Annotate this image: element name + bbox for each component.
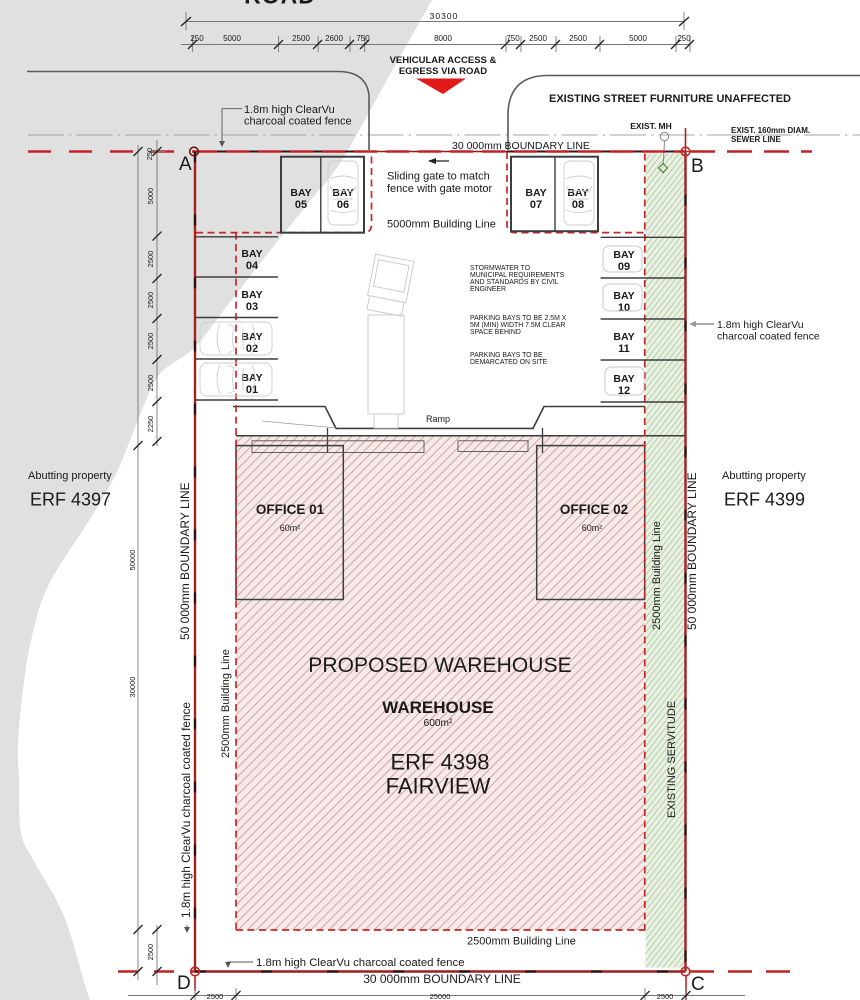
svg-text:8000: 8000 <box>434 34 452 43</box>
svg-text:BAY: BAY <box>613 249 634 261</box>
svg-text:2500: 2500 <box>146 251 155 268</box>
svg-text:OFFICE 02: OFFICE 02 <box>560 502 628 517</box>
svg-text:D: D <box>177 973 191 994</box>
svg-text:EXIST. 160mm DIAM.: EXIST. 160mm DIAM. <box>731 126 810 135</box>
svg-text:SEWER LINE: SEWER LINE <box>731 135 781 144</box>
svg-text:ERF 4399: ERF 4399 <box>724 490 805 510</box>
svg-text:01: 01 <box>246 384 258 396</box>
svg-text:2500: 2500 <box>146 944 155 961</box>
svg-text:2500: 2500 <box>529 34 547 43</box>
svg-text:BAY: BAY <box>567 187 588 199</box>
svg-text:05: 05 <box>295 199 307 211</box>
svg-text:PARKING BAYS TO BE: PARKING BAYS TO BE <box>470 352 543 359</box>
svg-text:ERF 4398: ERF 4398 <box>390 750 489 775</box>
svg-text:BAY: BAY <box>332 187 353 199</box>
svg-text:30 000mm BOUNDARY LINE: 30 000mm BOUNDARY LINE <box>363 972 521 986</box>
svg-text:WAREHOUSE: WAREHOUSE <box>382 698 493 717</box>
svg-text:SPACE BEHIND: SPACE BEHIND <box>470 329 521 336</box>
svg-text:charcoal coated fence: charcoal coated fence <box>717 331 820 343</box>
svg-text:1.8m high ClearVu: 1.8m high ClearVu <box>717 319 804 331</box>
svg-text:STORMWATER TO: STORMWATER TO <box>470 265 531 272</box>
svg-text:04: 04 <box>246 260 259 272</box>
svg-text:2500: 2500 <box>207 992 224 1000</box>
svg-text:250: 250 <box>190 34 204 43</box>
svg-text:PROPOSED WAREHOUSE: PROPOSED WAREHOUSE <box>308 654 572 677</box>
svg-text:fence with gate motor: fence with gate motor <box>387 183 493 195</box>
svg-text:5000mm Building Line: 5000mm Building Line <box>387 219 496 231</box>
svg-text:Abutting property: Abutting property <box>722 470 806 482</box>
svg-text:750: 750 <box>356 34 370 43</box>
svg-text:BAY: BAY <box>525 187 546 199</box>
svg-text:EXISTING SERVITUDE: EXISTING SERVITUDE <box>666 701 678 818</box>
svg-text:03: 03 <box>246 301 258 313</box>
svg-text:charcoal coated fence: charcoal coated fence <box>244 116 352 128</box>
svg-text:750: 750 <box>506 34 520 43</box>
svg-text:BAY: BAY <box>613 373 634 385</box>
svg-text:Sliding gate to match: Sliding gate to match <box>387 171 490 183</box>
svg-text:BAY: BAY <box>241 331 262 343</box>
svg-text:2600: 2600 <box>325 34 343 43</box>
svg-text:2500mm Building Line: 2500mm Building Line <box>651 521 663 630</box>
svg-text:BAY: BAY <box>290 187 311 199</box>
svg-text:5000: 5000 <box>223 34 241 43</box>
svg-text:BAY: BAY <box>241 289 262 301</box>
svg-text:250: 250 <box>677 34 691 43</box>
svg-text:1.8m high ClearVu charcoal coa: 1.8m high ClearVu charcoal coated fence <box>179 702 193 918</box>
svg-text:2500: 2500 <box>292 34 310 43</box>
svg-text:02: 02 <box>246 343 258 355</box>
svg-text:30000: 30000 <box>128 677 137 698</box>
svg-text:08: 08 <box>572 199 584 211</box>
svg-text:AND STANDARDS BY CIVIL: AND STANDARDS BY CIVIL <box>470 279 559 286</box>
svg-text:06: 06 <box>337 199 349 211</box>
svg-text:60m²: 60m² <box>582 523 603 533</box>
svg-text:ROAD: ROAD <box>244 0 316 9</box>
svg-text:2500: 2500 <box>146 292 155 309</box>
svg-text:25000: 25000 <box>430 992 451 1000</box>
svg-text:2500: 2500 <box>569 34 587 43</box>
svg-text:PARKING BAYS TO BE 2.5M X: PARKING BAYS TO BE 2.5M X <box>470 315 567 322</box>
svg-text:MUNICIPAL REQUIREMENTS: MUNICIPAL REQUIREMENTS <box>470 272 565 279</box>
svg-text:2500: 2500 <box>146 333 155 350</box>
svg-text:600m²: 600m² <box>424 718 453 729</box>
svg-text:11: 11 <box>618 343 630 355</box>
svg-text:A: A <box>179 154 192 175</box>
svg-text:50000: 50000 <box>128 550 137 571</box>
svg-text:EXISTING STREET FURNITURE UNAF: EXISTING STREET FURNITURE UNAFFECTED <box>549 93 791 105</box>
svg-text:50 000mm BOUNDARY LINE: 50 000mm BOUNDARY LINE <box>178 482 192 640</box>
svg-text:10: 10 <box>618 302 630 314</box>
svg-text:50 000mm BOUNDARY LINE: 50 000mm BOUNDARY LINE <box>685 472 699 630</box>
svg-text:Ramp: Ramp <box>426 414 450 424</box>
svg-text:09: 09 <box>618 261 630 273</box>
svg-text:5000: 5000 <box>629 34 647 43</box>
svg-text:OFFICE 01: OFFICE 01 <box>256 502 325 517</box>
svg-text:DEMARCATED ON SITE: DEMARCATED ON SITE <box>470 359 548 366</box>
svg-text:2250: 2250 <box>146 416 155 433</box>
svg-text:5000: 5000 <box>146 188 155 205</box>
svg-text:30300: 30300 <box>430 11 459 21</box>
svg-text:Abutting property: Abutting property <box>28 470 112 482</box>
svg-text:VEHICULAR ACCESS &: VEHICULAR ACCESS & <box>390 55 497 66</box>
svg-text:BAY: BAY <box>241 248 262 260</box>
svg-text:BAY: BAY <box>613 331 634 343</box>
svg-text:C: C <box>691 974 705 995</box>
svg-text:BAY: BAY <box>241 372 262 384</box>
svg-text:30 000mm BOUNDARY LINE: 30 000mm BOUNDARY LINE <box>452 140 590 152</box>
svg-text:2500: 2500 <box>657 992 674 1000</box>
svg-text:2500mm Building Line: 2500mm Building Line <box>220 649 232 758</box>
svg-text:B: B <box>691 156 704 177</box>
svg-text:250: 250 <box>145 148 154 161</box>
svg-text:FAIRVIEW: FAIRVIEW <box>386 774 491 799</box>
svg-text:07: 07 <box>530 199 542 211</box>
svg-text:5M (MIN) WIDTH 7.5M CLEAR: 5M (MIN) WIDTH 7.5M CLEAR <box>470 322 565 329</box>
svg-text:ENGINEER: ENGINEER <box>470 286 506 293</box>
svg-text:60m²: 60m² <box>280 523 301 533</box>
svg-text:EXIST. MH: EXIST. MH <box>630 121 672 131</box>
svg-text:2500mm Building Line: 2500mm Building Line <box>467 936 576 948</box>
svg-text:EGRESS VIA ROAD: EGRESS VIA ROAD <box>399 66 487 77</box>
svg-text:1.8m high ClearVu charcoal coa: 1.8m high ClearVu charcoal coated fence <box>256 957 465 969</box>
svg-text:BAY: BAY <box>613 290 634 302</box>
svg-text:1.8m high ClearVu: 1.8m high ClearVu <box>244 104 335 116</box>
svg-text:2500: 2500 <box>146 375 155 392</box>
svg-text:ERF 4397: ERF 4397 <box>30 490 111 510</box>
